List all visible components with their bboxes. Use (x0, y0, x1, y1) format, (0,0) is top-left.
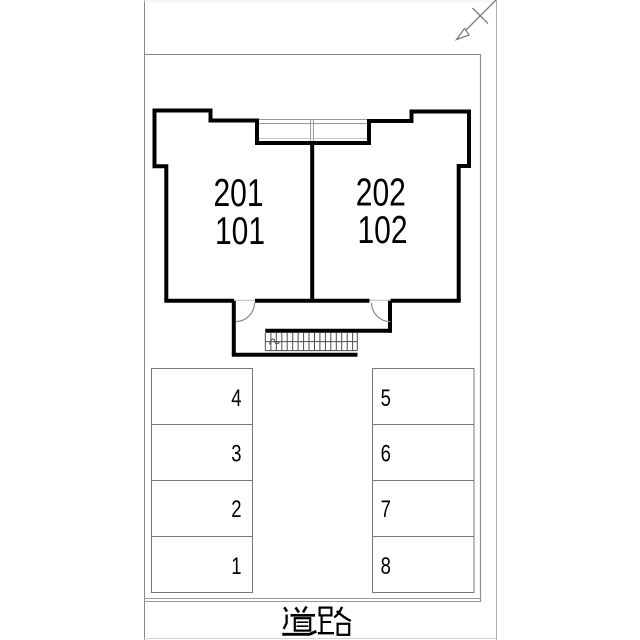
svg-text:1: 1 (231, 553, 241, 580)
svg-text:3: 3 (231, 440, 241, 467)
svg-text:102: 102 (357, 208, 407, 252)
svg-text:5: 5 (381, 385, 391, 412)
svg-text:6: 6 (381, 440, 391, 467)
svg-text:2: 2 (231, 496, 241, 523)
svg-text:8: 8 (381, 553, 391, 580)
svg-text:4: 4 (231, 385, 241, 412)
svg-text:101: 101 (215, 209, 265, 253)
svg-text:7: 7 (381, 496, 391, 523)
